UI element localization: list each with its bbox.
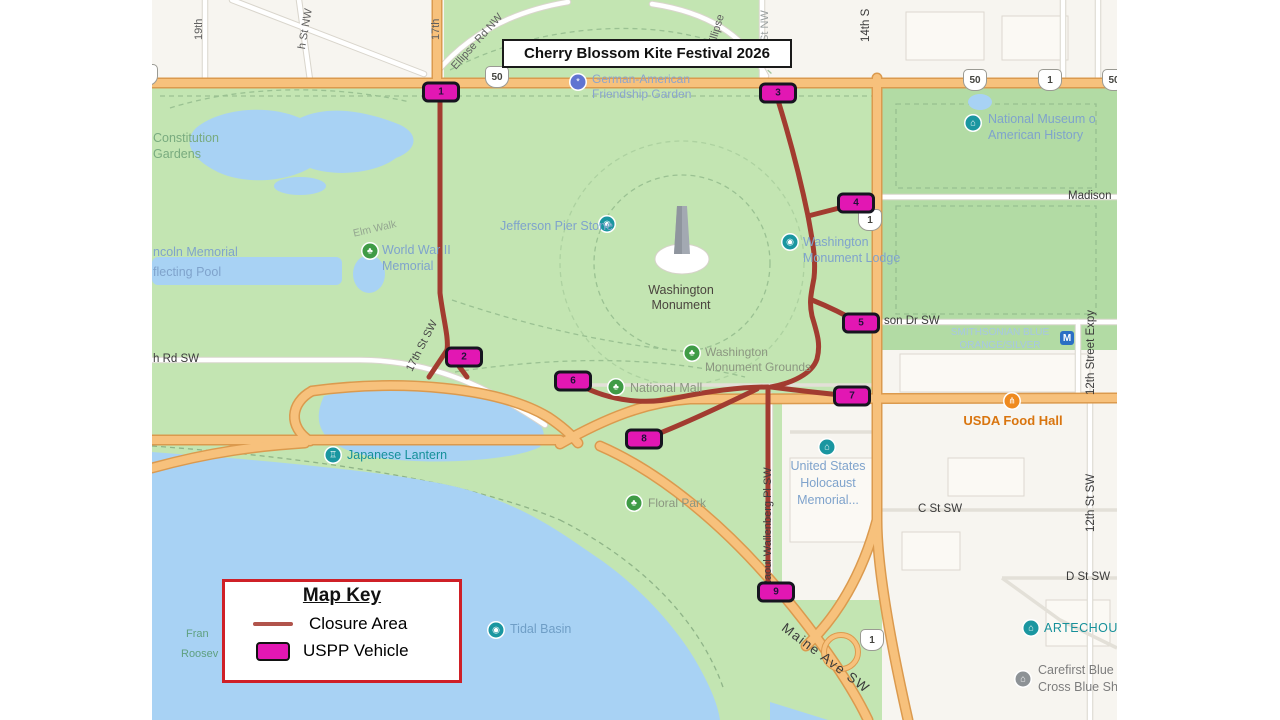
tree-icon: ♣ [609, 380, 624, 395]
artechouse-icon: ⌂ [1024, 621, 1039, 636]
uspp-vehicle-marker-3: 3 [759, 83, 797, 104]
vehicle-label: USPP Vehicle [303, 641, 409, 661]
poi-jefferson-pier-stone: Jefferson Pier Stone [500, 218, 613, 234]
street-label-jefferson-dr-sw: son Dr SW [884, 315, 940, 327]
uspp-vehicle-marker-4: 4 [837, 193, 875, 214]
uspp-vehicle-marker-9: 9 [757, 582, 795, 603]
road-shield: 50 [1102, 69, 1117, 91]
poi-tidal-basin: Tidal Basin [510, 622, 571, 636]
street-label-12th-st-sw: 12th St SW [1085, 474, 1097, 532]
map-key-closure-row: Closure Area [225, 614, 459, 634]
street-label-c-st-sw: C St SW [918, 503, 962, 515]
poi-constitution-gardens: ConstitutionGardens [153, 130, 219, 162]
uspp-vehicle-marker-1: 1 [422, 82, 460, 103]
tree-icon: ♣ [627, 496, 642, 511]
museum-icon: ⌂ [820, 440, 835, 455]
uspp-vehicle-marker-2: 2 [445, 347, 483, 368]
street-label-rd-sw: h Rd SW [153, 353, 199, 365]
poi-floral-park: Floral Park [648, 496, 706, 511]
poi-holocaust-memorial: United StatesHolocaustMemorial... [790, 458, 865, 509]
camera-icon: ◉ [783, 235, 798, 250]
map-key-title: Map Key [225, 585, 459, 607]
museum-icon: ⌂ [966, 116, 981, 131]
poi-artechouse: ARTECHOU [1044, 621, 1117, 635]
street-label-d-st-sw: D St SW [1066, 571, 1110, 583]
poi-smithsonian-metro: SMITHSONIAN BLUEORANGE/SILVER [951, 326, 1049, 352]
building-icon: ⌂ [1016, 672, 1031, 687]
road-shield: 50 [963, 69, 987, 91]
garden-icon: * [571, 75, 586, 90]
poi-monument-lodge: WashingtonMonument Lodge [803, 234, 900, 266]
metro-icon: M [1060, 331, 1074, 345]
map-stage: 50 50 50 1 50 1 1 ◉ ◉ ◉ ♖ ♣ ♣ ♣ ♣ * ⌂ ⌂ … [152, 0, 1117, 720]
street-label-19th: 19th [193, 19, 205, 40]
road-shield: 1 [1038, 69, 1062, 91]
poi-usda-food-hall: USDA Food Hall [963, 413, 1062, 428]
camera-icon: ◉ [489, 623, 504, 638]
lantern-icon: ♖ [326, 448, 341, 463]
closure-line-swatch [253, 622, 293, 627]
fork-knife-icon: ⋔ [1005, 394, 1020, 409]
poi-reflecting-pool: ncoln Memorialflecting Pool [153, 242, 238, 282]
uspp-vehicle-marker-7: 7 [833, 386, 871, 407]
poi-carefirst: Carefirst BlueCross Blue Shiel [1038, 662, 1117, 696]
poi-washington-monument: WashingtonMonument [648, 283, 714, 313]
poi-monument-grounds: WashingtonMonument Grounds [705, 345, 811, 375]
uspp-vehicle-marker-8: 8 [625, 429, 663, 450]
poi-american-history-museum: National Museum oAmerican History [988, 111, 1096, 143]
poi-roosevelt-memorial: FranRoosev [186, 624, 218, 664]
street-label-12th-street-expy: 12th Street Expy [1085, 310, 1097, 395]
poi-national-mall: National Mall [630, 381, 702, 396]
street-label-15th-st-nw: St NW [759, 10, 771, 42]
street-label-14th-st: 14th S [860, 9, 872, 42]
road-shield: 50 [485, 66, 509, 88]
uspp-vehicle-marker-5: 5 [842, 313, 880, 334]
street-label-madison: Madison [1068, 190, 1111, 202]
poi-japanese-lantern: Japanese Lantern [347, 448, 447, 462]
closure-label: Closure Area [309, 614, 407, 634]
map-key-vehicle-row: USPP Vehicle [225, 641, 459, 661]
poi-friendship-garden: German-AmericanFriendship Garden [592, 72, 691, 102]
uspp-vehicle-swatch [256, 642, 290, 661]
title-banner: Cherry Blossom Kite Festival 2026 [502, 39, 792, 68]
tree-icon: ♣ [685, 346, 700, 361]
screenshot-root: { "title_banner": { "text": "Cherry Blos… [0, 0, 1280, 720]
poi-wwii-memorial: World War IIMemorial [382, 242, 451, 274]
road-shield: 1 [860, 629, 884, 651]
uspp-vehicle-marker-6: 6 [554, 371, 592, 392]
map-key: Map Key Closure Area USPP Vehicle [222, 579, 462, 683]
tree-icon: ♣ [363, 244, 378, 259]
street-label-raoul-wallenberg: Raoul Wallenberg Pl SW [762, 467, 774, 588]
map-canvas[interactable]: 50 50 50 1 50 1 1 ◉ ◉ ◉ ♖ ♣ ♣ ♣ ♣ * ⌂ ⌂ … [152, 0, 1117, 720]
street-label-17th: 17th [430, 19, 442, 40]
